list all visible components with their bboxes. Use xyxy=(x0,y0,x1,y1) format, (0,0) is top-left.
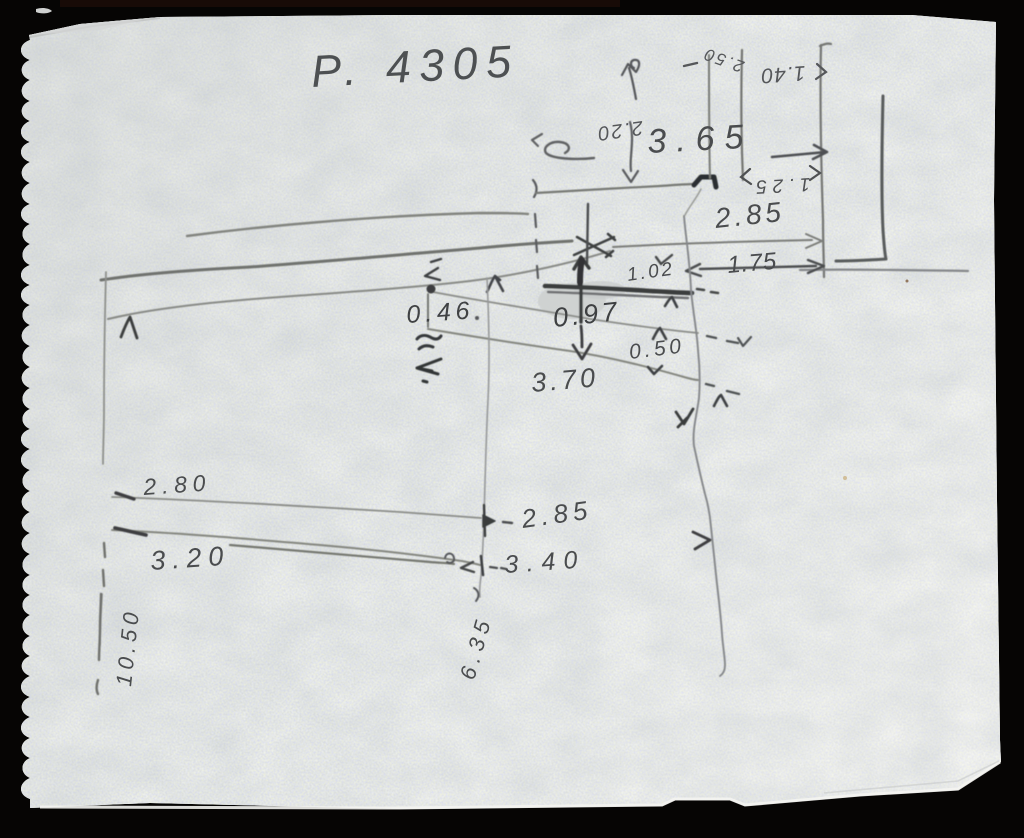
svg-text:1.40: 1.40 xyxy=(760,61,806,87)
svg-text:3.70: 3.70 xyxy=(530,363,596,398)
svg-text:3.20: 3.20 xyxy=(149,541,224,576)
svg-text:3.65: 3.65 xyxy=(646,118,744,161)
svg-text:0.46: 0.46 xyxy=(405,297,470,329)
svg-text:2.80: 2.80 xyxy=(142,470,207,500)
svg-text:1.25: 1.25 xyxy=(755,173,810,197)
svg-text:1.75: 1.75 xyxy=(726,248,778,279)
